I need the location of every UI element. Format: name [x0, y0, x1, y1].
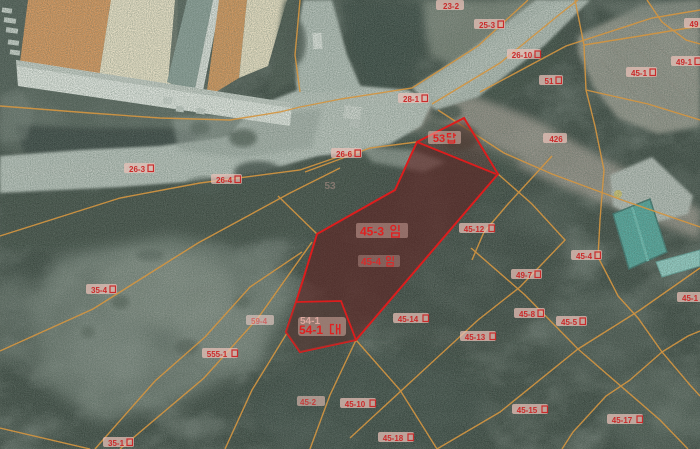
svg-text:45-18: 45-18 — [383, 434, 404, 443]
svg-text:45-17: 45-17 — [612, 416, 633, 425]
svg-text:45-4: 45-4 — [361, 257, 381, 268]
svg-text:45-13: 45-13 — [465, 333, 486, 342]
svg-text:26-3: 26-3 — [129, 165, 146, 174]
svg-text:45-14: 45-14 — [398, 315, 419, 324]
svg-text:51: 51 — [545, 77, 554, 86]
svg-text:45-2: 45-2 — [300, 398, 317, 407]
svg-text:25-3: 25-3 — [479, 21, 496, 30]
svg-text:45-4: 45-4 — [576, 252, 593, 261]
svg-text:45-1: 45-1 — [682, 294, 699, 303]
svg-text:45-5: 45-5 — [561, 318, 578, 327]
svg-text:45-15: 45-15 — [517, 406, 538, 415]
svg-text:45-12: 45-12 — [464, 225, 485, 234]
svg-text:59-4: 59-4 — [251, 317, 268, 326]
svg-text:53: 53 — [324, 181, 336, 192]
svg-text:45-10: 45-10 — [345, 400, 366, 409]
svg-text:26-6: 26-6 — [336, 150, 353, 159]
svg-text:45-8: 45-8 — [519, 310, 536, 319]
svg-text:35-4: 35-4 — [91, 286, 108, 295]
svg-text:35-1: 35-1 — [108, 439, 125, 448]
svg-text:53: 53 — [433, 133, 445, 145]
svg-text:426: 426 — [549, 135, 563, 144]
svg-text:26-4: 26-4 — [216, 176, 233, 185]
svg-text:23-2: 23-2 — [443, 2, 460, 11]
svg-text:49-1: 49-1 — [676, 58, 693, 67]
svg-text:45-3: 45-3 — [360, 225, 384, 239]
svg-text:49: 49 — [690, 20, 699, 29]
svg-text:555-1: 555-1 — [207, 350, 228, 359]
svg-text:26-10: 26-10 — [512, 51, 533, 60]
svg-text:28-1: 28-1 — [403, 95, 420, 104]
svg-text:49-7: 49-7 — [516, 271, 533, 280]
svg-text:54-1: 54-1 — [299, 323, 323, 337]
svg-text:45-1: 45-1 — [631, 69, 648, 78]
